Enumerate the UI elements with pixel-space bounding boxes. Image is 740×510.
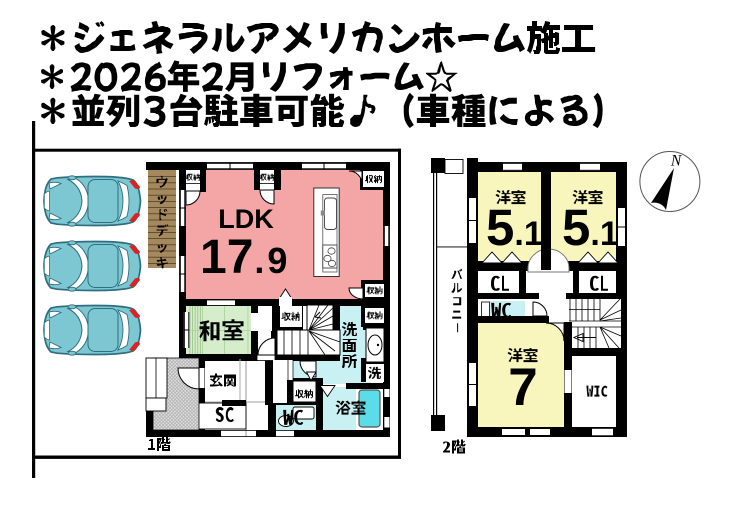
svg-text:7: 7 [508,358,537,417]
svg-text:N: N [670,153,683,170]
svg-text:LDK: LDK [218,204,274,234]
